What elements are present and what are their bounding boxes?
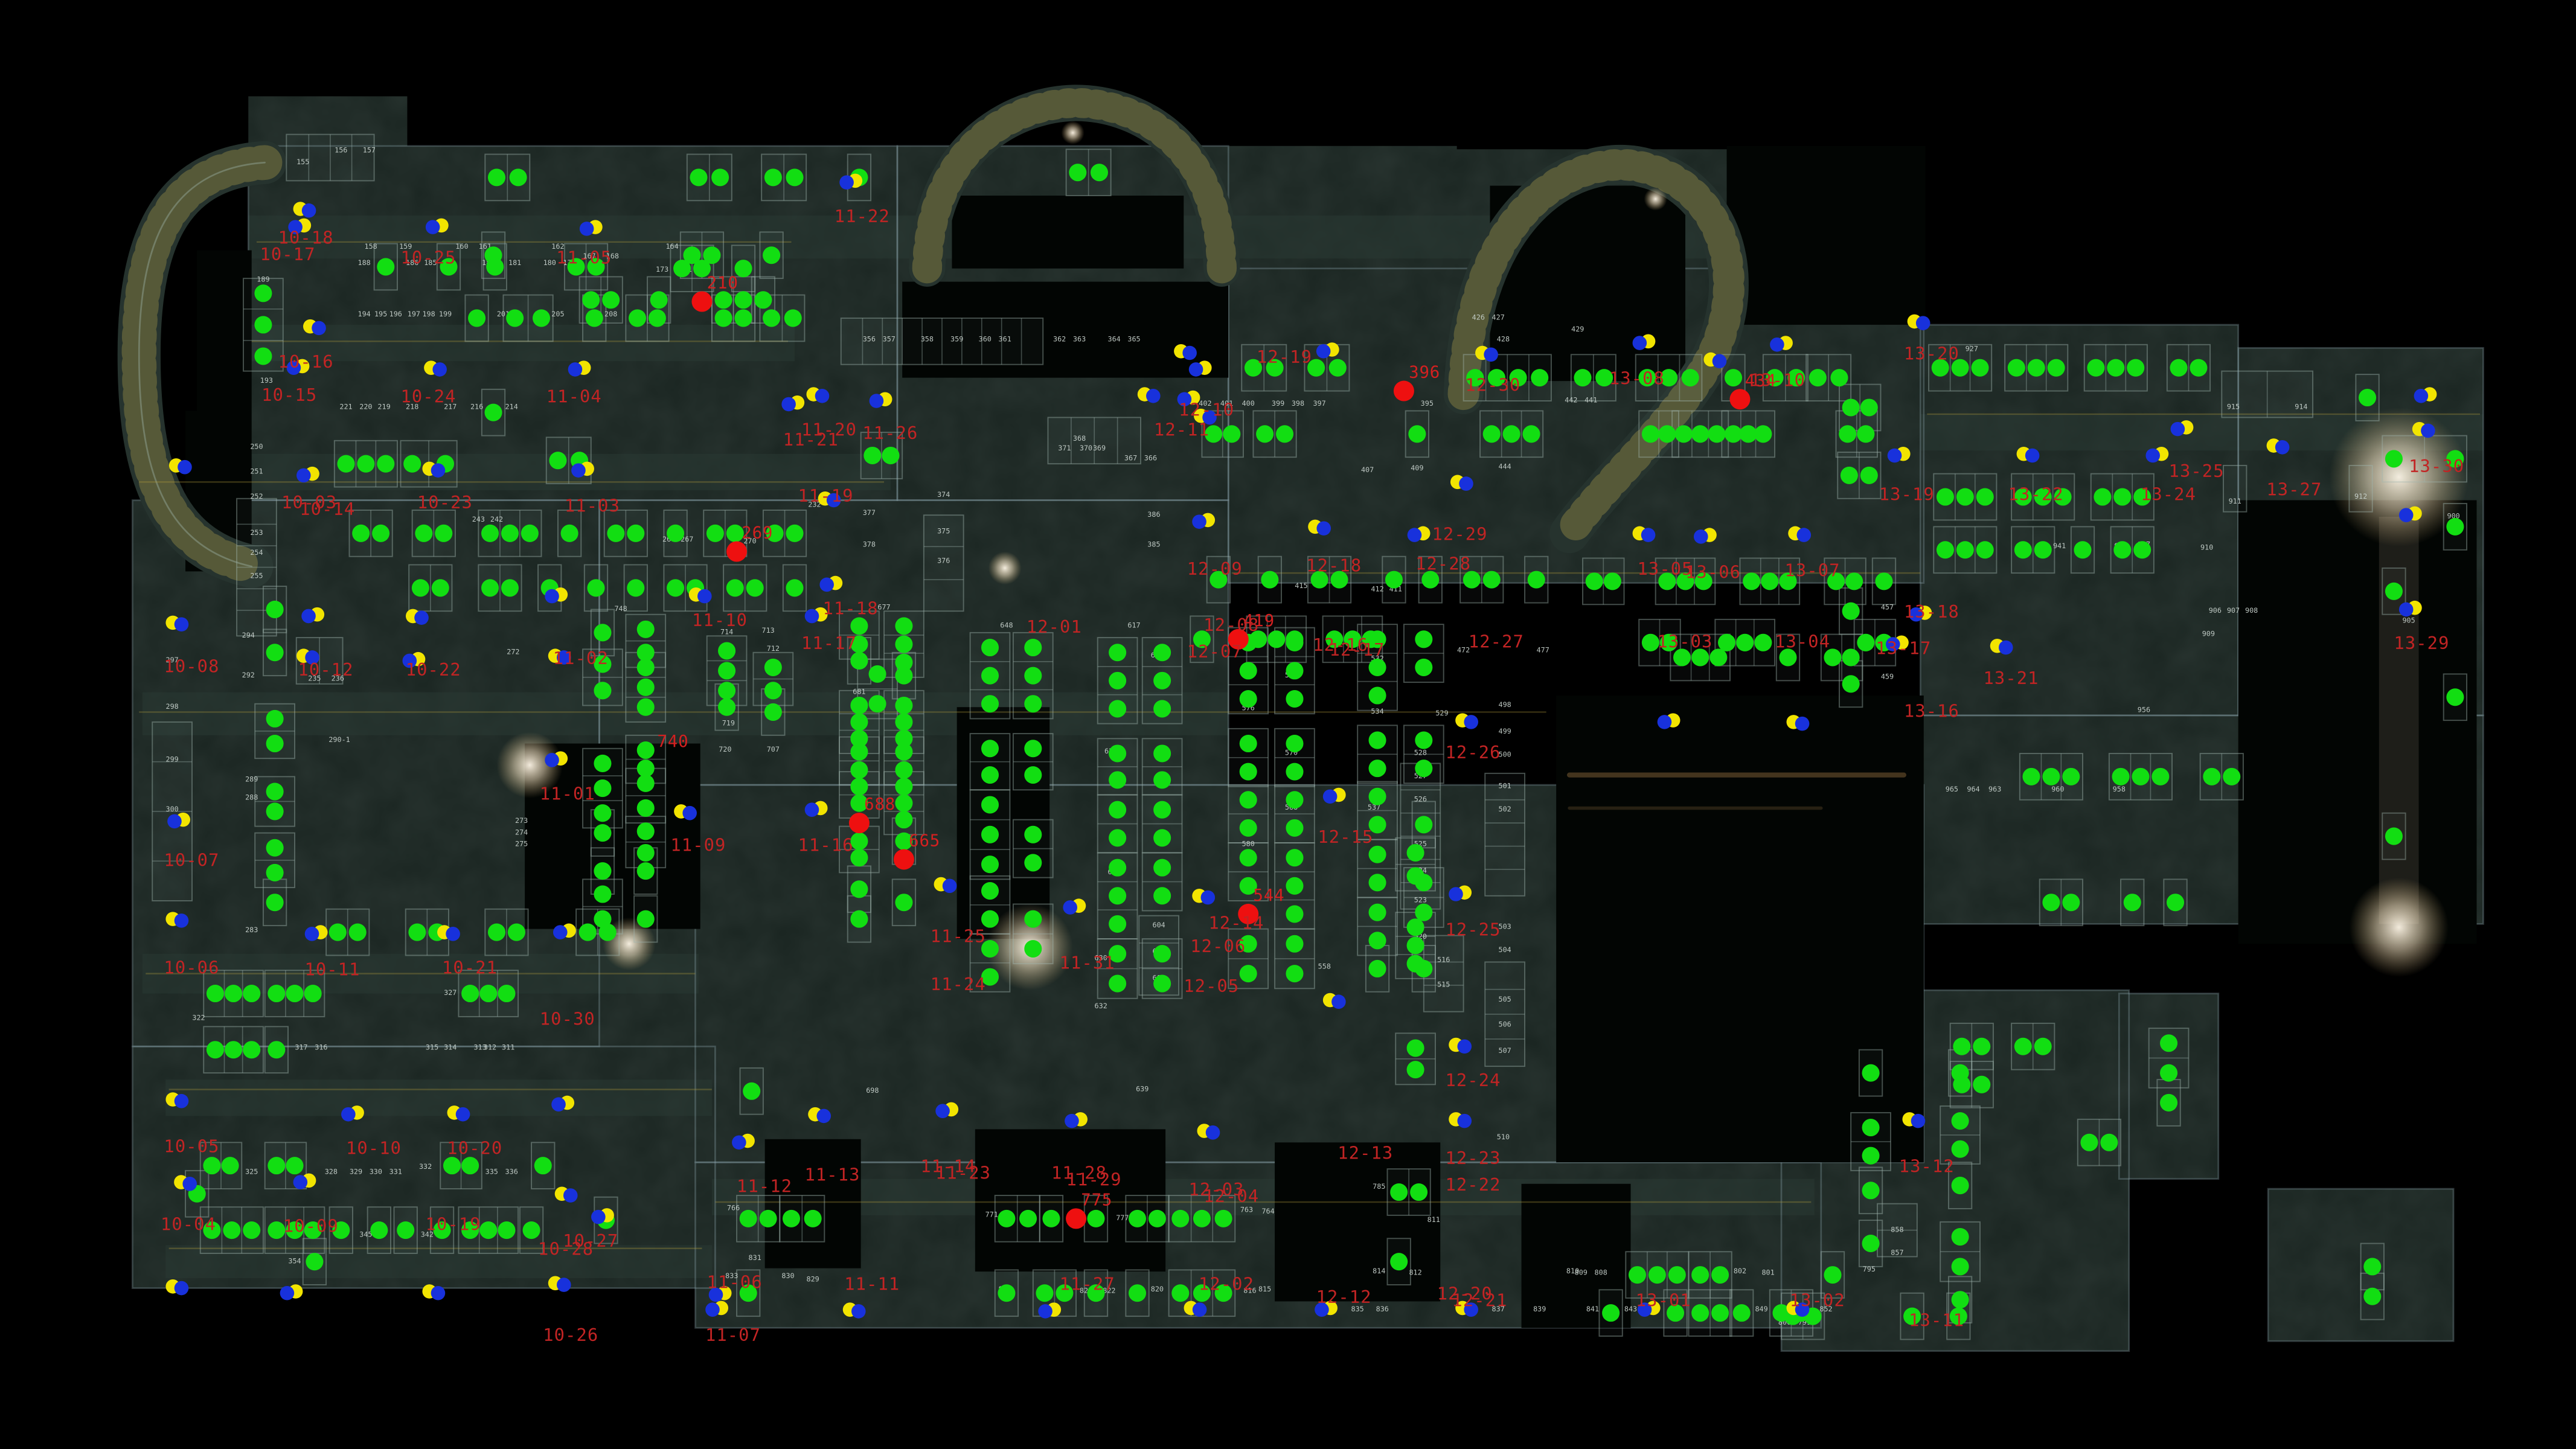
- vacant-spot-dot[interactable]: [1024, 740, 1042, 757]
- vacant-spot-dot[interactable]: [304, 985, 322, 1002]
- vacant-spot-dot[interactable]: [443, 1157, 461, 1174]
- vacant-spot-dot[interactable]: [850, 761, 868, 779]
- vacant-spot-dot[interactable]: [2014, 541, 2032, 558]
- vacant-spot-dot[interactable]: [1369, 760, 1386, 777]
- vacant-spot-dot[interactable]: [1036, 1284, 1053, 1302]
- vacant-spot-dot[interactable]: [1109, 801, 1126, 819]
- vacant-spot-dot[interactable]: [706, 525, 724, 542]
- vacant-spot-dot[interactable]: [1407, 918, 1424, 936]
- vacant-spot-dot[interactable]: [850, 617, 868, 635]
- vacant-spot-dot[interactable]: [266, 783, 284, 801]
- vacant-spot-dot[interactable]: [869, 665, 886, 683]
- vacant-spot-dot[interactable]: [2446, 688, 2464, 706]
- vacant-spot-dot[interactable]: [760, 1210, 777, 1227]
- vacant-spot-dot[interactable]: [1528, 571, 1545, 589]
- vacant-spot-dot[interactable]: [2151, 768, 2169, 785]
- vacant-spot-dot[interactable]: [268, 1157, 285, 1174]
- vacant-spot-dot[interactable]: [435, 525, 452, 542]
- vacant-spot-dot[interactable]: [1369, 732, 1386, 749]
- vacant-spot-dot[interactable]: [718, 662, 735, 679]
- vacant-spot-dot[interactable]: [783, 1210, 800, 1227]
- vacant-spot-dot[interactable]: [1385, 571, 1403, 589]
- vacant-spot-dot[interactable]: [746, 579, 764, 597]
- vacant-spot-dot[interactable]: [2170, 359, 2187, 377]
- vacant-spot-dot[interactable]: [1839, 425, 1856, 443]
- vacant-spot-dot[interactable]: [1952, 1228, 1969, 1246]
- vacant-spot-dot[interactable]: [1256, 425, 1274, 443]
- vacant-spot-dot[interactable]: [1153, 859, 1171, 877]
- vacant-spot-dot[interactable]: [1153, 975, 1171, 993]
- vacant-spot-dot[interactable]: [1240, 763, 1257, 781]
- vacant-spot-dot[interactable]: [1953, 1038, 1970, 1055]
- vacant-spot-dot[interactable]: [726, 579, 744, 597]
- vacant-spot-dot[interactable]: [895, 761, 912, 779]
- vacant-spot-dot[interactable]: [1286, 935, 1303, 953]
- vacant-spot-dot[interactable]: [594, 824, 611, 842]
- vacant-spot-dot[interactable]: [222, 1157, 239, 1174]
- vacant-spot-dot[interactable]: [1267, 630, 1285, 648]
- vacant-spot-dot[interactable]: [582, 291, 600, 309]
- vacant-spot-dot[interactable]: [1153, 771, 1171, 788]
- vacant-spot-dot[interactable]: [1691, 1266, 1709, 1284]
- vacant-spot-dot[interactable]: [981, 796, 999, 813]
- vacant-spot-dot[interactable]: [1109, 700, 1126, 717]
- vacant-spot-dot[interactable]: [1369, 846, 1386, 863]
- vacant-spot-dot[interactable]: [1574, 369, 1591, 386]
- vacant-spot-dot[interactable]: [1286, 791, 1303, 808]
- vacant-spot-dot[interactable]: [1708, 425, 1726, 443]
- vacant-spot-dot[interactable]: [1691, 1304, 1709, 1322]
- vacant-spot-dot[interactable]: [602, 291, 620, 309]
- vacant-spot-dot[interactable]: [1087, 1210, 1104, 1227]
- vacant-spot-dot[interactable]: [2087, 359, 2104, 377]
- vacant-spot-dot[interactable]: [637, 659, 655, 676]
- vacant-spot-dot[interactable]: [2132, 768, 2149, 785]
- vacant-spot-dot[interactable]: [266, 864, 284, 881]
- vacant-spot-dot[interactable]: [207, 985, 224, 1002]
- vacant-spot-dot[interactable]: [1024, 940, 1042, 958]
- vacant-spot-dot[interactable]: [484, 404, 502, 421]
- vacant-spot-dot[interactable]: [715, 309, 732, 327]
- vacant-spot-dot[interactable]: [1761, 572, 1778, 590]
- vacant-spot-dot[interactable]: [1754, 425, 1772, 443]
- vacant-spot-dot[interactable]: [1286, 690, 1303, 708]
- vacant-spot-dot[interactable]: [594, 885, 611, 903]
- vacant-spot-dot[interactable]: [2133, 541, 2151, 558]
- vacant-spot-dot[interactable]: [579, 924, 597, 941]
- vacant-spot-dot[interactable]: [501, 579, 519, 597]
- vacant-spot-dot[interactable]: [981, 826, 999, 843]
- vacant-spot-dot[interactable]: [637, 822, 655, 840]
- vacant-spot-dot[interactable]: [594, 755, 611, 772]
- vacant-spot-dot[interactable]: [1407, 955, 1424, 973]
- vacant-spot-dot[interactable]: [403, 455, 421, 473]
- vacant-spot-dot[interactable]: [521, 525, 539, 542]
- vacant-spot-dot[interactable]: [1976, 488, 1994, 505]
- vacant-spot-dot[interactable]: [715, 291, 732, 309]
- vacant-spot-dot[interactable]: [895, 778, 912, 795]
- vacant-spot-dot[interactable]: [1276, 425, 1293, 443]
- vacant-spot-dot[interactable]: [1743, 572, 1760, 590]
- vacant-spot-dot[interactable]: [349, 924, 367, 941]
- alert-spot-dot[interactable]: [691, 292, 712, 312]
- vacant-spot-dot[interactable]: [627, 525, 644, 542]
- vacant-spot-dot[interactable]: [1286, 735, 1303, 752]
- vacant-spot-dot[interactable]: [268, 1041, 285, 1058]
- vacant-spot-dot[interactable]: [1369, 904, 1386, 921]
- vacant-spot-dot[interactable]: [2062, 894, 2080, 911]
- vacant-spot-dot[interactable]: [2014, 1038, 2032, 1055]
- vacant-spot-dot[interactable]: [2124, 894, 2141, 911]
- vacant-spot-dot[interactable]: [895, 713, 912, 731]
- vacant-spot-dot[interactable]: [637, 621, 655, 638]
- alert-spot-dot[interactable]: [726, 541, 747, 561]
- vacant-spot-dot[interactable]: [1952, 1112, 1969, 1130]
- vacant-spot-dot[interactable]: [1857, 634, 1874, 651]
- vacant-spot-dot[interactable]: [850, 713, 868, 731]
- vacant-spot-dot[interactable]: [594, 910, 611, 928]
- vacant-spot-dot[interactable]: [1842, 675, 1860, 693]
- vacant-spot-dot[interactable]: [2190, 359, 2207, 377]
- vacant-spot-dot[interactable]: [882, 447, 899, 464]
- alert-spot-dot[interactable]: [1066, 1208, 1086, 1229]
- vacant-spot-dot[interactable]: [1736, 634, 1754, 651]
- vacant-spot-dot[interactable]: [207, 1041, 224, 1058]
- vacant-spot-dot[interactable]: [1754, 634, 1772, 651]
- vacant-spot-dot[interactable]: [998, 1210, 1015, 1227]
- vacant-spot-dot[interactable]: [764, 703, 782, 721]
- vacant-spot-dot[interactable]: [1875, 572, 1892, 590]
- vacant-spot-dot[interactable]: [637, 799, 655, 817]
- vacant-spot-dot[interactable]: [1286, 877, 1303, 895]
- vacant-spot-dot[interactable]: [764, 682, 782, 699]
- vacant-spot-dot[interactable]: [1329, 359, 1347, 377]
- vacant-spot-dot[interactable]: [1109, 859, 1126, 877]
- vacant-spot-dot[interactable]: [1024, 826, 1042, 843]
- vacant-spot-dot[interactable]: [243, 1221, 260, 1239]
- vacant-spot-dot[interactable]: [1842, 603, 1860, 620]
- vacant-spot-dot[interactable]: [2160, 1034, 2177, 1052]
- vacant-spot-dot[interactable]: [254, 347, 272, 365]
- vacant-spot-dot[interactable]: [2094, 488, 2111, 505]
- vacant-spot-dot[interactable]: [2385, 450, 2403, 467]
- vacant-spot-dot[interactable]: [1024, 854, 1042, 871]
- vacant-spot-dot[interactable]: [1691, 425, 1709, 443]
- vacant-spot-dot[interactable]: [850, 778, 868, 795]
- vacant-spot-dot[interactable]: [1841, 467, 1858, 484]
- vacant-spot-dot[interactable]: [734, 291, 752, 309]
- vacant-spot-dot[interactable]: [397, 1221, 414, 1239]
- vacant-spot-dot[interactable]: [690, 168, 707, 186]
- vacant-spot-dot[interactable]: [1711, 1266, 1729, 1284]
- vacant-spot-dot[interactable]: [2042, 894, 2060, 911]
- vacant-spot-dot[interactable]: [1845, 572, 1863, 590]
- vacant-spot-dot[interactable]: [1531, 369, 1548, 386]
- vacant-spot-dot[interactable]: [2359, 389, 2376, 406]
- vacant-spot-dot[interactable]: [352, 525, 370, 542]
- vacant-spot-dot[interactable]: [1369, 788, 1386, 805]
- vacant-spot-dot[interactable]: [1415, 732, 1432, 749]
- vacant-spot-dot[interactable]: [1862, 1235, 1880, 1252]
- vacant-spot-dot[interactable]: [377, 258, 394, 275]
- vacant-spot-dot[interactable]: [850, 910, 868, 928]
- vacant-spot-dot[interactable]: [895, 743, 912, 761]
- vacant-spot-dot[interactable]: [1415, 816, 1432, 833]
- vacant-spot-dot[interactable]: [895, 667, 912, 685]
- vacant-spot-dot[interactable]: [1153, 672, 1171, 689]
- vacant-spot-dot[interactable]: [479, 985, 497, 1002]
- vacant-spot-dot[interactable]: [1215, 1210, 1232, 1227]
- vacant-spot-dot[interactable]: [1642, 425, 1659, 443]
- vacant-spot-dot[interactable]: [2042, 768, 2060, 785]
- vacant-spot-dot[interactable]: [1171, 1210, 1189, 1227]
- vacant-spot-dot[interactable]: [523, 1221, 540, 1239]
- vacant-spot-dot[interactable]: [1109, 887, 1126, 904]
- vacant-spot-dot[interactable]: [357, 455, 374, 473]
- vacant-spot-dot[interactable]: [1240, 735, 1257, 752]
- vacant-spot-dot[interactable]: [981, 882, 999, 900]
- vacant-spot-dot[interactable]: [481, 525, 499, 542]
- vacant-spot-dot[interactable]: [225, 1041, 242, 1058]
- vacant-spot-dot[interactable]: [488, 168, 505, 186]
- vacant-spot-dot[interactable]: [895, 697, 912, 714]
- vacant-spot-dot[interactable]: [1369, 960, 1386, 977]
- vacant-spot-dot[interactable]: [1407, 1061, 1424, 1078]
- vacant-spot-dot[interactable]: [1809, 369, 1827, 386]
- vacant-spot-dot[interactable]: [764, 659, 782, 676]
- vacant-spot-dot[interactable]: [2100, 1134, 2118, 1151]
- vacant-spot-dot[interactable]: [1602, 1304, 1620, 1322]
- vacant-spot-dot[interactable]: [479, 1221, 497, 1239]
- vacant-spot-dot[interactable]: [998, 1284, 1015, 1302]
- vacant-spot-dot[interactable]: [1952, 1177, 1969, 1194]
- vacant-spot-dot[interactable]: [2363, 1258, 2381, 1275]
- vacant-spot-dot[interactable]: [498, 1221, 515, 1239]
- vacant-spot-dot[interactable]: [637, 741, 655, 759]
- vacant-spot-dot[interactable]: [869, 695, 886, 712]
- vacant-spot-dot[interactable]: [2062, 768, 2080, 785]
- vacant-spot-dot[interactable]: [508, 924, 525, 941]
- vacant-spot-dot[interactable]: [764, 168, 782, 186]
- vacant-spot-dot[interactable]: [1153, 700, 1171, 717]
- vacant-spot-dot[interactable]: [1286, 905, 1303, 923]
- vacant-spot-dot[interactable]: [637, 862, 655, 880]
- vacant-spot-dot[interactable]: [2113, 488, 2131, 505]
- vacant-spot-dot[interactable]: [2113, 541, 2131, 558]
- vacant-spot-dot[interactable]: [895, 811, 912, 828]
- vacant-spot-dot[interactable]: [1286, 819, 1303, 837]
- vacant-spot-dot[interactable]: [501, 525, 519, 542]
- vacant-spot-dot[interactable]: [981, 856, 999, 873]
- vacant-spot-dot[interactable]: [266, 802, 284, 820]
- vacant-spot-dot[interactable]: [1171, 1284, 1189, 1302]
- vacant-spot-dot[interactable]: [329, 924, 347, 941]
- vacant-spot-dot[interactable]: [1830, 369, 1848, 386]
- vacant-spot-dot[interactable]: [286, 1157, 303, 1174]
- vacant-spot-dot[interactable]: [1860, 398, 1878, 416]
- vacant-spot-dot[interactable]: [981, 667, 999, 685]
- vacant-spot-dot[interactable]: [254, 284, 272, 302]
- vacant-spot-dot[interactable]: [498, 985, 515, 1002]
- vacant-spot-dot[interactable]: [1153, 829, 1171, 846]
- vacant-spot-dot[interactable]: [506, 309, 524, 327]
- vacant-spot-dot[interactable]: [1973, 1076, 1990, 1093]
- vacant-spot-dot[interactable]: [1240, 965, 1257, 982]
- vacant-spot-dot[interactable]: [549, 452, 566, 469]
- vacant-spot-dot[interactable]: [1407, 936, 1424, 954]
- vacant-spot-dot[interactable]: [1718, 634, 1735, 651]
- vacant-spot-dot[interactable]: [850, 697, 868, 714]
- vacant-spot-dot[interactable]: [2048, 359, 2065, 377]
- vacant-spot-dot[interactable]: [1390, 1253, 1408, 1270]
- vacant-spot-dot[interactable]: [1407, 844, 1424, 862]
- vacant-spot-dot[interactable]: [587, 579, 604, 597]
- vacant-spot-dot[interactable]: [1193, 1210, 1211, 1227]
- vacant-spot-dot[interactable]: [627, 579, 644, 597]
- vacant-spot-dot[interactable]: [667, 579, 684, 597]
- vacant-spot-dot[interactable]: [2160, 1094, 2177, 1112]
- vacant-spot-dot[interactable]: [1407, 1039, 1424, 1057]
- vacant-spot-dot[interactable]: [1483, 571, 1501, 589]
- vacant-spot-dot[interactable]: [2127, 359, 2144, 377]
- vacant-spot-dot[interactable]: [718, 699, 735, 716]
- vacant-spot-dot[interactable]: [1286, 763, 1303, 781]
- vacant-spot-dot[interactable]: [2074, 541, 2091, 558]
- vacant-spot-dot[interactable]: [1109, 644, 1126, 661]
- vacant-spot-dot[interactable]: [637, 844, 655, 862]
- vacant-spot-dot[interactable]: [804, 1210, 822, 1227]
- vacant-spot-dot[interactable]: [268, 985, 285, 1002]
- vacant-spot-dot[interactable]: [486, 258, 504, 275]
- vacant-spot-dot[interactable]: [1024, 695, 1042, 712]
- vacant-spot-dot[interactable]: [1153, 945, 1171, 962]
- vacant-spot-dot[interactable]: [306, 1253, 323, 1270]
- vacant-spot-dot[interactable]: [510, 168, 527, 186]
- alert-spot-dot[interactable]: [849, 813, 870, 833]
- vacant-spot-dot[interactable]: [2385, 828, 2403, 845]
- vacant-spot-dot[interactable]: [718, 682, 735, 699]
- vacant-spot-dot[interactable]: [1153, 644, 1171, 661]
- vacant-spot-dot[interactable]: [895, 617, 912, 635]
- vacant-spot-dot[interactable]: [223, 1221, 240, 1239]
- vacant-spot-dot[interactable]: [1129, 1284, 1146, 1302]
- vacant-spot-dot[interactable]: [1953, 1076, 1970, 1093]
- vacant-spot-dot[interactable]: [1109, 672, 1126, 689]
- vacant-spot-dot[interactable]: [533, 309, 550, 327]
- vacant-spot-dot[interactable]: [2034, 541, 2052, 558]
- vacant-spot-dot[interactable]: [1415, 904, 1432, 921]
- vacant-spot-dot[interactable]: [1956, 488, 1974, 505]
- vacant-spot-dot[interactable]: [1862, 1182, 1880, 1199]
- vacant-spot-dot[interactable]: [1369, 686, 1386, 704]
- vacant-spot-dot[interactable]: [1286, 849, 1303, 866]
- vacant-spot-dot[interactable]: [718, 642, 735, 659]
- vacant-spot-dot[interactable]: [1648, 1266, 1666, 1284]
- vacant-spot-dot[interactable]: [1109, 915, 1126, 933]
- vacant-spot-dot[interactable]: [650, 291, 668, 309]
- vacant-spot-dot[interactable]: [254, 316, 272, 333]
- vacant-spot-dot[interactable]: [1129, 1210, 1146, 1227]
- vacant-spot-dot[interactable]: [1390, 1183, 1408, 1201]
- vacant-spot-dot[interactable]: [1842, 648, 1860, 666]
- vacant-spot-dot[interactable]: [1503, 425, 1520, 443]
- vacant-spot-dot[interactable]: [594, 682, 611, 699]
- vacant-spot-dot[interactable]: [1956, 541, 1974, 558]
- vacant-spot-dot[interactable]: [850, 880, 868, 898]
- vacant-spot-dot[interactable]: [594, 779, 611, 797]
- vacant-spot-dot[interactable]: [1682, 369, 1699, 386]
- vacant-spot-dot[interactable]: [637, 775, 655, 792]
- vacant-spot-dot[interactable]: [1658, 425, 1676, 443]
- vacant-spot-dot[interactable]: [1937, 488, 1954, 505]
- vacant-spot-dot[interactable]: [2034, 1038, 2052, 1055]
- vacant-spot-dot[interactable]: [377, 455, 394, 473]
- vacant-spot-dot[interactable]: [266, 839, 284, 857]
- vacant-spot-dot[interactable]: [1824, 1266, 1841, 1284]
- vacant-spot-dot[interactable]: [763, 309, 780, 327]
- vacant-spot-dot[interactable]: [1952, 1140, 1969, 1158]
- vacant-spot-dot[interactable]: [2363, 1288, 2381, 1305]
- vacant-spot-dot[interactable]: [1240, 791, 1257, 808]
- vacant-spot-dot[interactable]: [488, 924, 505, 941]
- vacant-spot-dot[interactable]: [468, 309, 485, 327]
- vacant-spot-dot[interactable]: [1042, 1210, 1060, 1227]
- vacant-spot-dot[interactable]: [1109, 975, 1126, 993]
- vacant-spot-dot[interactable]: [203, 1157, 220, 1174]
- vacant-spot-dot[interactable]: [1586, 572, 1603, 590]
- vacant-spot-dot[interactable]: [850, 743, 868, 761]
- vacant-spot-dot[interactable]: [243, 1041, 260, 1058]
- vacant-spot-dot[interactable]: [895, 795, 912, 812]
- vacant-spot-dot[interactable]: [1024, 667, 1042, 685]
- vacant-spot-dot[interactable]: [594, 624, 611, 641]
- vacant-spot-dot[interactable]: [586, 309, 603, 327]
- vacant-spot-dot[interactable]: [981, 766, 999, 784]
- vacant-spot-dot[interactable]: [786, 525, 803, 542]
- vacant-spot-dot[interactable]: [1733, 1304, 1751, 1322]
- vacant-spot-dot[interactable]: [1286, 634, 1303, 651]
- vacant-spot-dot[interactable]: [1842, 398, 1860, 416]
- vacant-spot-dot[interactable]: [1862, 1147, 1880, 1165]
- vacant-spot-dot[interactable]: [607, 525, 624, 542]
- vacant-spot-dot[interactable]: [432, 579, 449, 597]
- vacant-spot-dot[interactable]: [370, 1221, 388, 1239]
- vacant-spot-dot[interactable]: [1286, 965, 1303, 982]
- vacant-spot-dot[interactable]: [481, 579, 499, 597]
- vacant-spot-dot[interactable]: [1415, 659, 1432, 676]
- vacant-spot-dot[interactable]: [1410, 1183, 1427, 1201]
- vacant-spot-dot[interactable]: [266, 601, 284, 618]
- vacant-spot-dot[interactable]: [1240, 662, 1257, 679]
- vacant-spot-dot[interactable]: [266, 894, 284, 911]
- vacant-spot-dot[interactable]: [667, 525, 684, 542]
- vacant-spot-dot[interactable]: [1240, 819, 1257, 837]
- vacant-spot-dot[interactable]: [1725, 369, 1742, 386]
- vacant-spot-dot[interactable]: [1091, 164, 1108, 181]
- vacant-spot-dot[interactable]: [1862, 1064, 1880, 1082]
- vacant-spot-dot[interactable]: [740, 1210, 757, 1227]
- vacant-spot-dot[interactable]: [1415, 760, 1432, 777]
- alert-spot-dot[interactable]: [1729, 389, 1750, 409]
- vacant-spot-dot[interactable]: [594, 862, 611, 880]
- vacant-spot-dot[interactable]: [637, 910, 655, 928]
- vacant-spot-dot[interactable]: [1369, 874, 1386, 891]
- vacant-spot-dot[interactable]: [2080, 1134, 2098, 1151]
- vacant-spot-dot[interactable]: [2160, 1064, 2177, 1082]
- vacant-spot-dot[interactable]: [561, 525, 578, 542]
- vacant-spot-dot[interactable]: [1973, 1038, 1990, 1055]
- vacant-spot-dot[interactable]: [2385, 583, 2403, 600]
